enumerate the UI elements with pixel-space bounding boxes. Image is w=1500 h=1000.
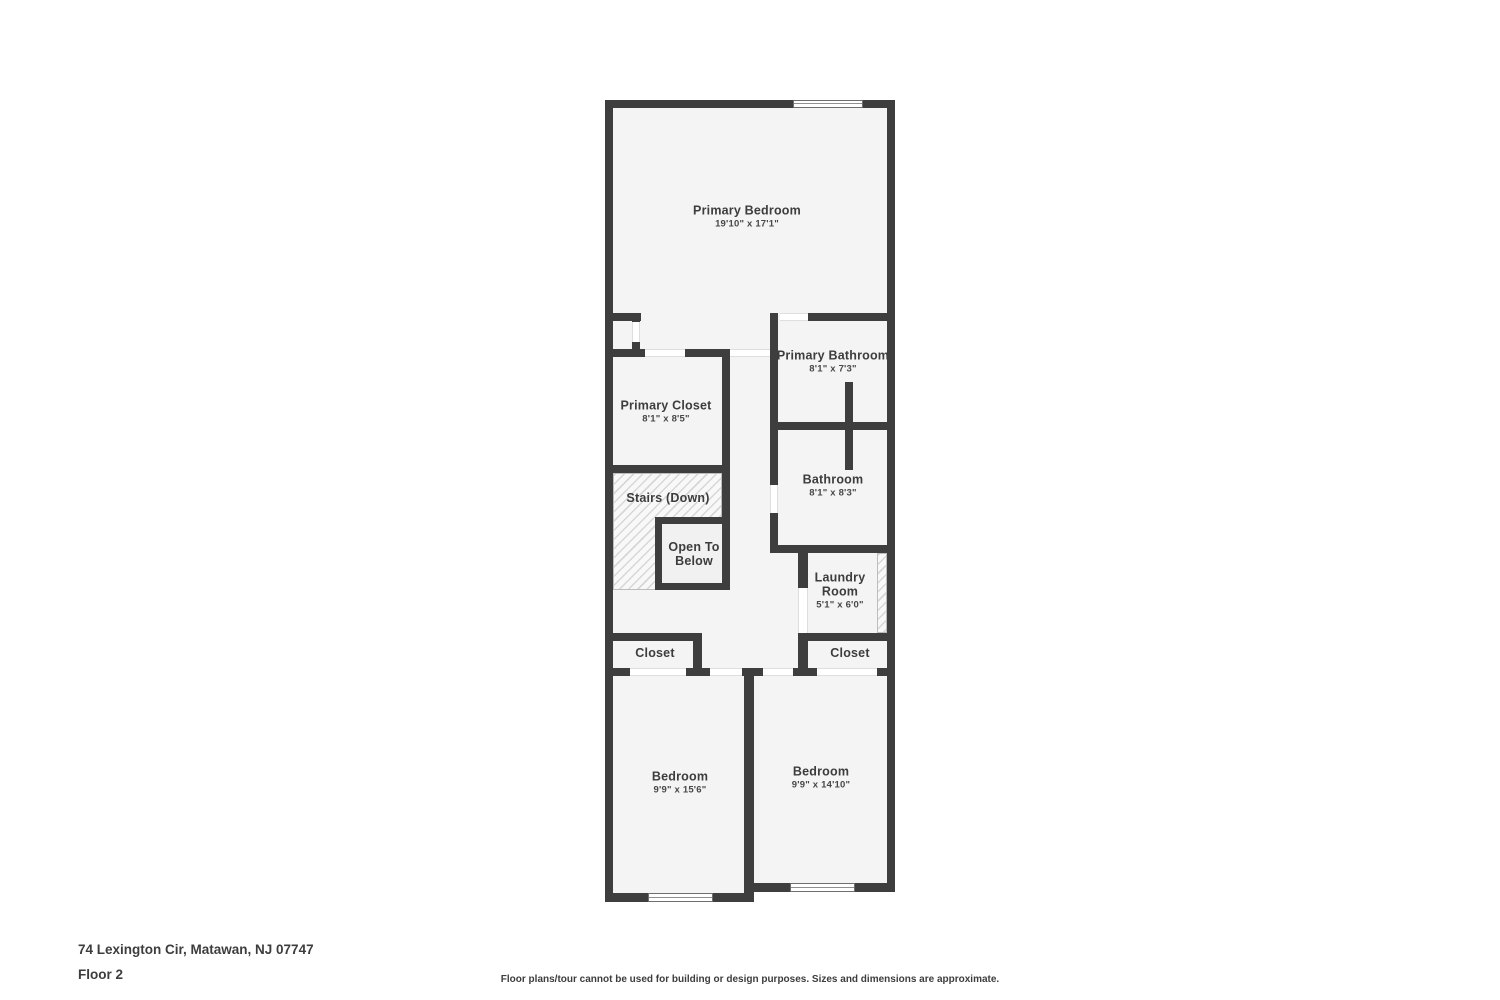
room-label-left-bedroom: Bedroom 9'9" x 15'6" [652, 770, 708, 797]
door-opening-right-bedroom [763, 668, 793, 676]
room-label-laundry-room: Laundry Room 5'1" x 6'0" [808, 571, 872, 612]
room-label-primary-closet: Primary Closet 8'1" x 8'5" [620, 399, 711, 426]
door-opening-hallway [730, 349, 770, 357]
page: Primary Bedroom 19'10" x 17'1" Primary B… [0, 0, 1500, 1000]
wall-bedroom-row-e [877, 668, 895, 676]
wall-plumbing-stub [845, 382, 853, 470]
room-label-right-closet: Closet [830, 646, 869, 660]
wall-exterior-right [887, 100, 895, 892]
door-opening-primary-bathroom [780, 313, 808, 321]
room-dimensions: 8'1" x 8'3" [803, 487, 864, 500]
room-name: Closet [830, 646, 869, 660]
room-label-stairs: Stairs (Down) [626, 491, 709, 505]
wall-bathrooms-divider [770, 422, 895, 430]
door-opening-primary-closet [645, 349, 685, 357]
address-text: 74 Lexington Cir, Matawan, NJ 07747 [78, 942, 314, 957]
door-opening-alcove [632, 322, 640, 342]
window-primary-bedroom [793, 100, 863, 108]
door-opening-left-closet [630, 668, 686, 676]
floor-plan: Primary Bedroom 19'10" x 17'1" Primary B… [605, 100, 895, 902]
wall-exterior-left [605, 100, 613, 902]
wall-bedroom-row-a [605, 668, 630, 676]
door-opening-bathroom [770, 485, 778, 513]
room-name: Bedroom [652, 770, 708, 784]
wall-primary-closet-top-a [605, 349, 645, 357]
room-name: Stairs (Down) [626, 491, 709, 505]
door-opening-left-bedroom [710, 668, 742, 676]
room-dimensions: 8'1" x 7'3" [777, 363, 889, 376]
wall-bathroom-bottom [770, 545, 895, 553]
room-label-right-bedroom: Bedroom 9'9" x 14'10" [792, 765, 850, 792]
room-name: Primary Bedroom [693, 204, 801, 218]
wall-laundry-left-upper [798, 545, 808, 588]
room-label-primary-bedroom: Primary Bedroom 19'10" x 17'1" [693, 204, 801, 231]
room-name: Open To Below [663, 540, 725, 568]
room-name: Primary Closet [620, 399, 711, 413]
room-name: Bathroom [803, 473, 864, 487]
room-dimensions: 9'9" x 14'10" [792, 779, 850, 792]
room-label-bathroom: Bathroom 8'1" x 8'3" [803, 473, 864, 500]
door-opening-laundry [798, 588, 808, 633]
room-name: Bedroom [792, 765, 850, 779]
wall-primary-closet-top-b [685, 349, 730, 357]
room-dimensions: 5'1" x 6'0" [808, 599, 872, 612]
wall-primary-bathroom-top [808, 313, 895, 321]
window-right-bedroom [790, 883, 855, 892]
room-dimensions: 8'1" x 8'5" [620, 413, 711, 426]
room-label-left-closet: Closet [635, 646, 674, 660]
room-dimensions: 9'9" x 15'6" [652, 784, 708, 797]
laundry-hatch [877, 553, 887, 633]
door-opening-right-closet [817, 668, 877, 676]
disclaimer-text: Floor plans/tour cannot be used for buil… [0, 974, 1500, 985]
outside-patch [754, 892, 895, 902]
wall-bedrooms-divider [744, 668, 754, 902]
room-label-primary-bathroom: Primary Bathroom 8'1" x 7'3" [777, 349, 889, 376]
room-name: Closet [635, 646, 674, 660]
wall-left-closet-top [605, 633, 702, 641]
wall-bedroom-row-d [793, 668, 817, 676]
wall-primary-closet-bottom [605, 465, 730, 473]
room-name: Laundry Room [808, 571, 872, 599]
room-dimensions: 19'10" x 17'1" [693, 218, 801, 231]
wall-laundry-bottom [798, 633, 895, 641]
room-name: Primary Bathroom [777, 349, 889, 363]
room-label-open-to-below: Open To Below [663, 540, 725, 568]
window-left-bedroom [648, 893, 713, 902]
wall-bedroom-row-b [686, 668, 710, 676]
